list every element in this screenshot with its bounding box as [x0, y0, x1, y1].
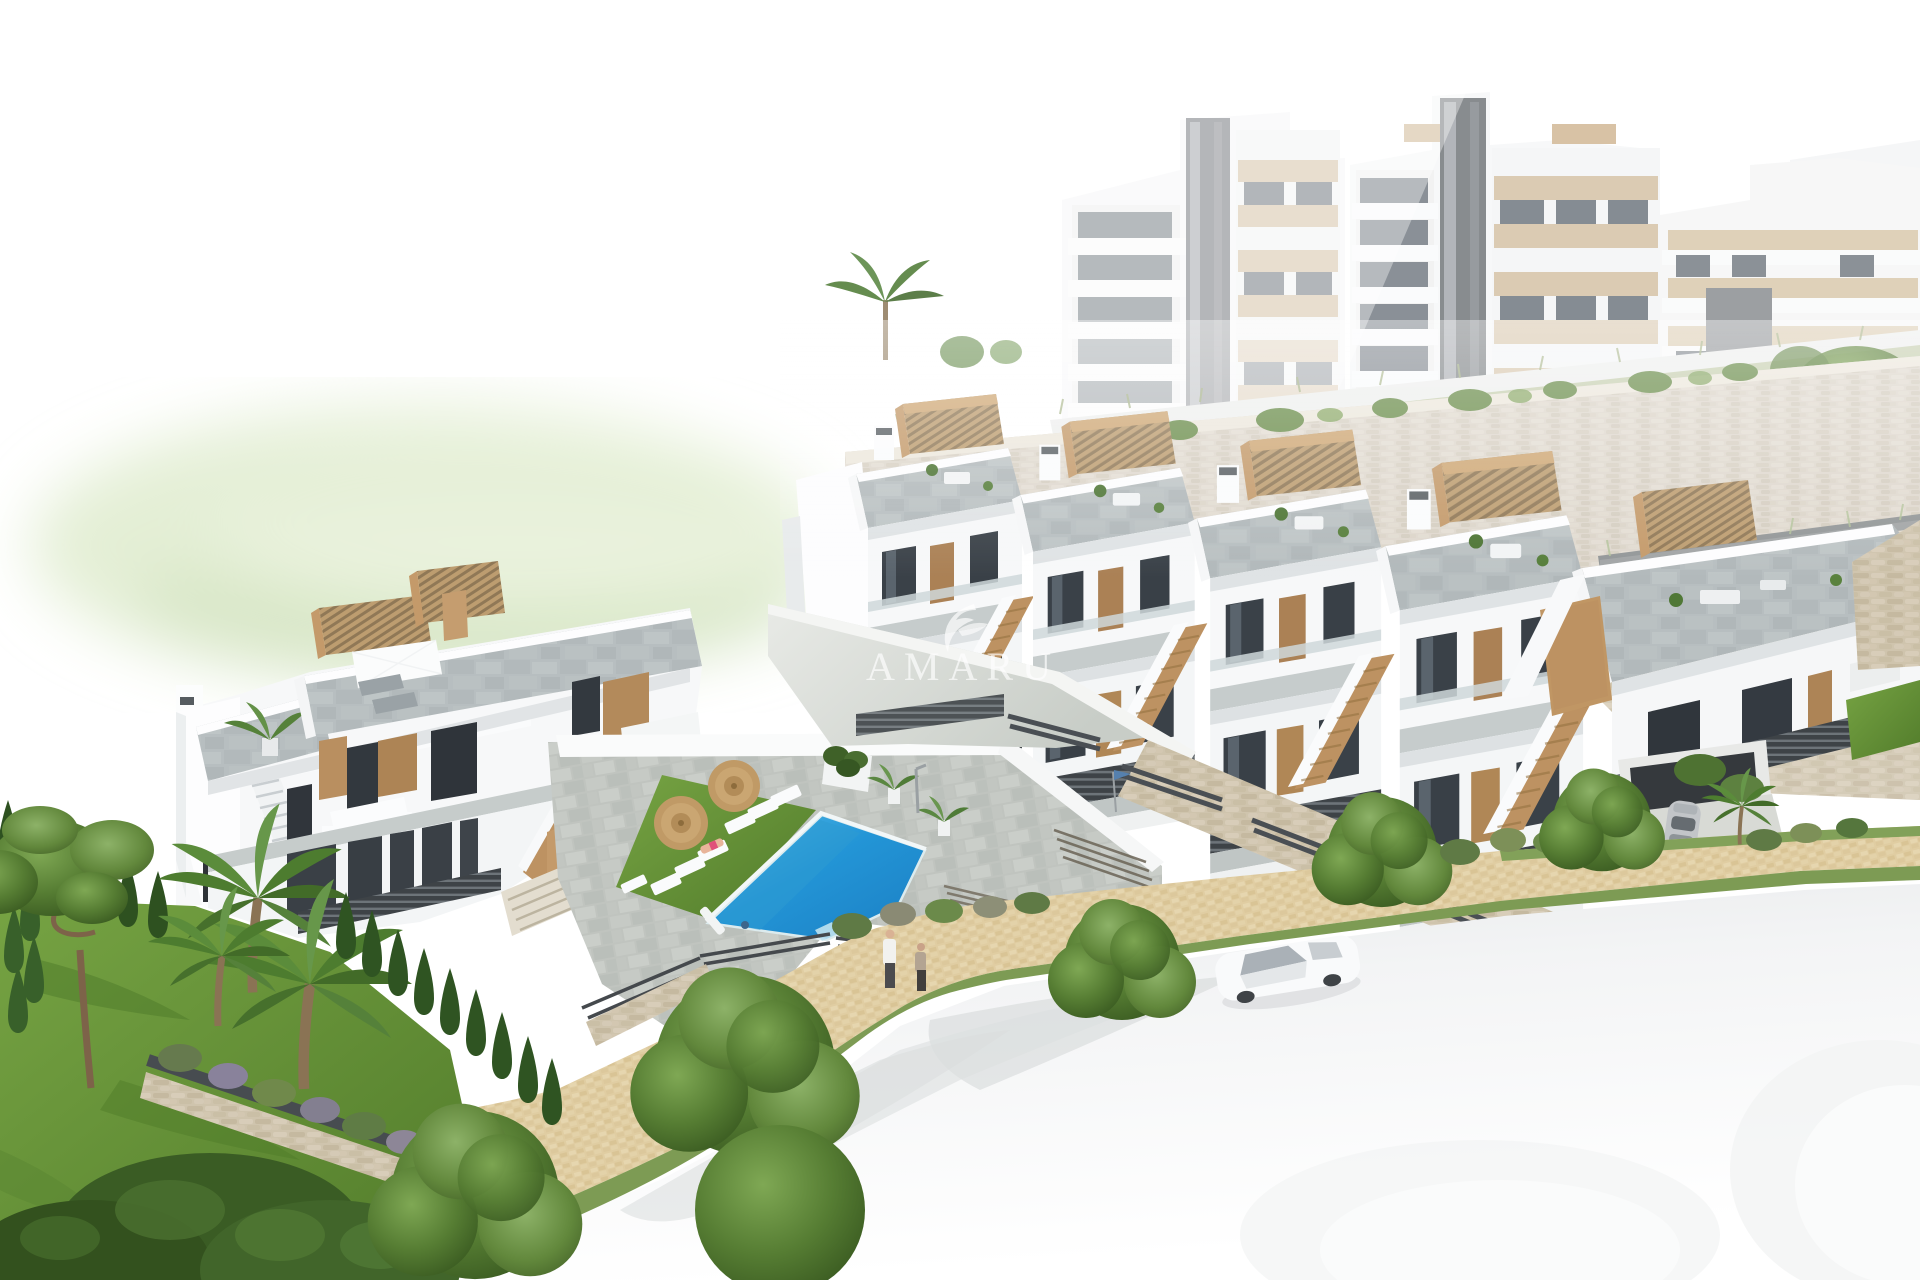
svg-text:AMARU: AMARU — [866, 644, 1060, 689]
